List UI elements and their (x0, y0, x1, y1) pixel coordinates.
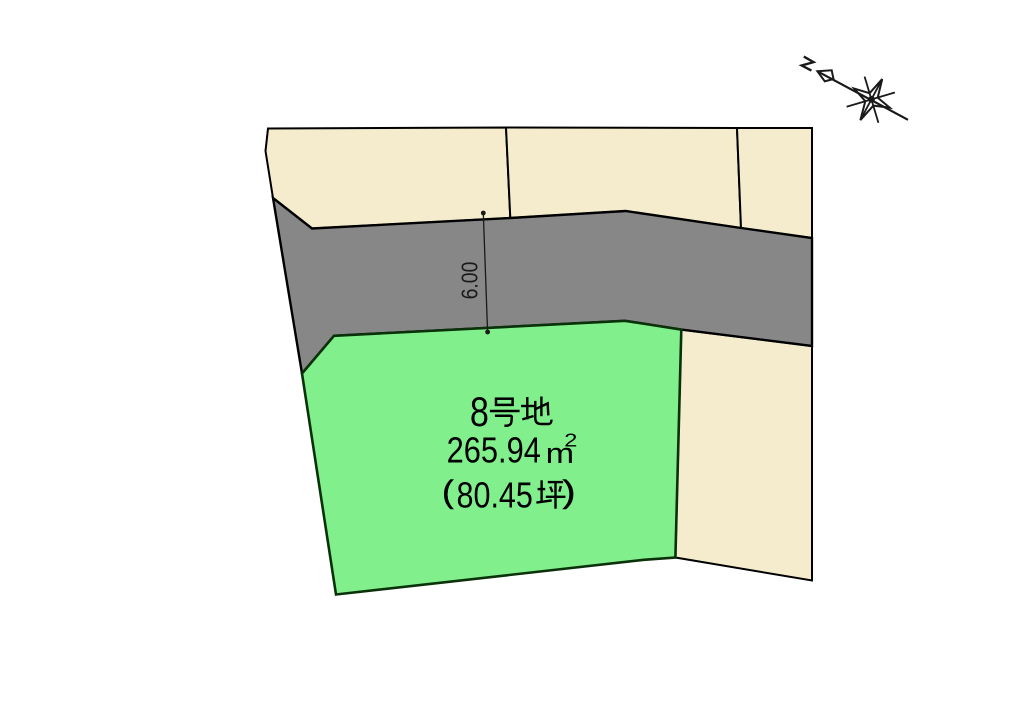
svg-text:): ) (563, 474, 576, 510)
svg-text:(: ( (442, 474, 454, 510)
svg-text:8: 8 (470, 388, 489, 435)
svg-text:2: 2 (564, 430, 577, 451)
svg-text:265.94: 265.94 (447, 430, 541, 471)
svg-text:80.45: 80.45 (457, 475, 533, 516)
svg-text:6.00: 6.00 (456, 262, 482, 300)
